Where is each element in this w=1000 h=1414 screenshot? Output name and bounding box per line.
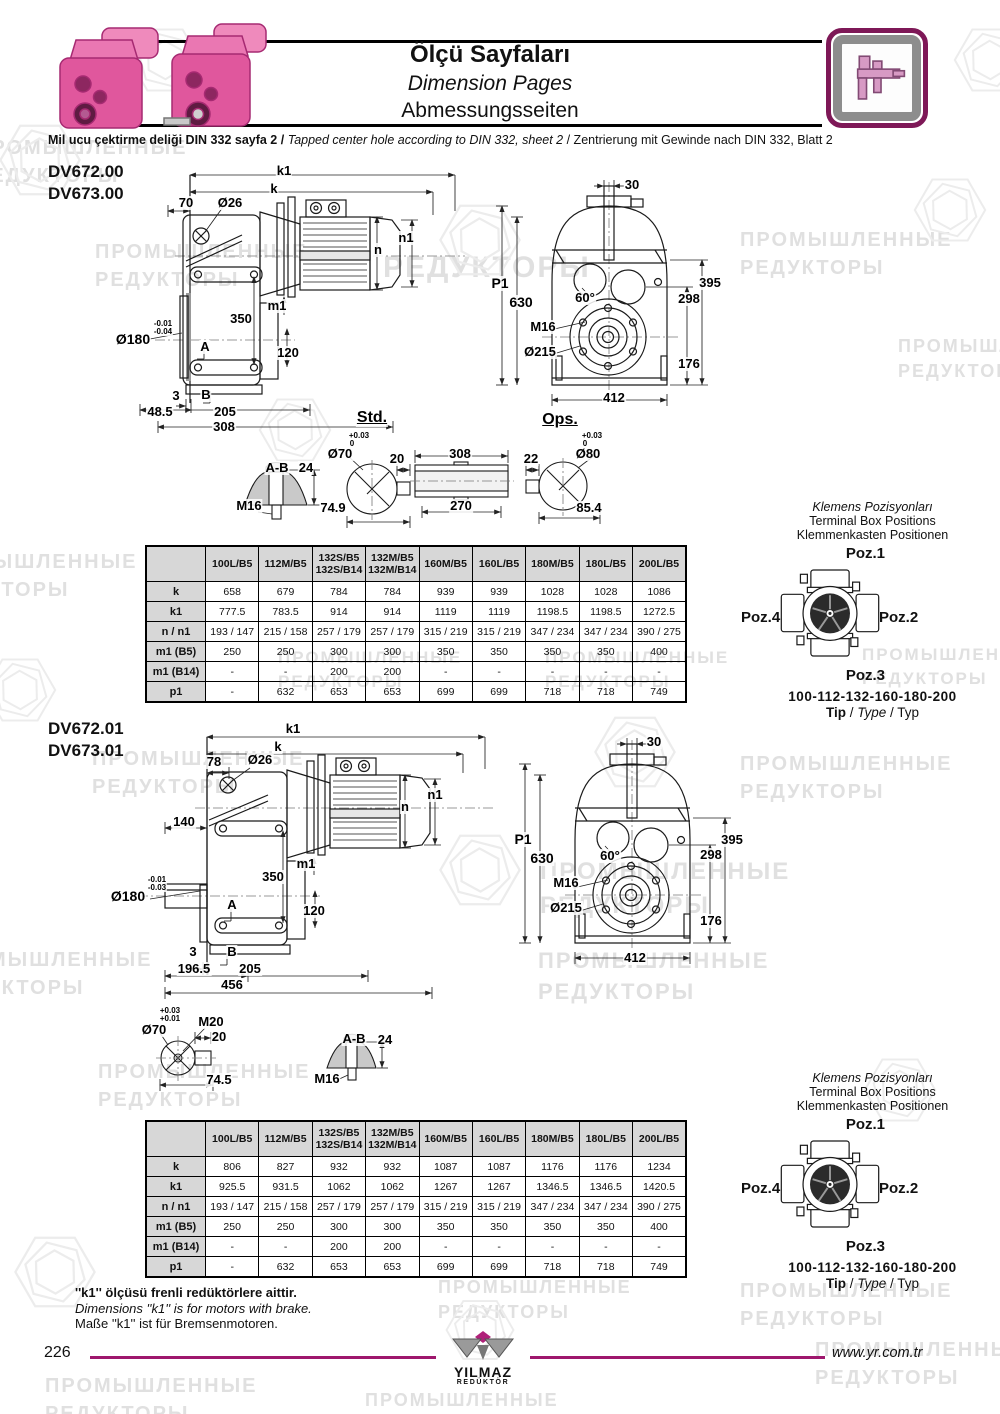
table-cell: 1119 [419, 602, 472, 622]
row-header: k [146, 582, 206, 602]
table-cell: 350 [472, 642, 525, 662]
table-cell: 350 [579, 1217, 632, 1237]
dimension-label: P1 [490, 276, 509, 291]
table-cell: 215 / 158 [259, 622, 312, 642]
dimension-label: 20 [211, 1030, 227, 1044]
table-row: k1777.5783.5914914111911191198.51198.512… [146, 602, 686, 622]
table-cell: 783.5 [259, 602, 312, 622]
column-header: 132S/B5 132S/B14 [312, 546, 365, 582]
model-code: DV673.01 [48, 740, 124, 762]
table-cell: 390 / 275 [633, 1197, 687, 1217]
table-row: n / n1193 / 147215 / 158257 / 179257 / 1… [146, 1197, 686, 1217]
poz2-label: Poz.2 [879, 1180, 918, 1197]
dimension-label: B [226, 945, 237, 959]
table-cell: 784 [312, 582, 365, 602]
din-note-en: Tapped center hole according to DIN 332,… [288, 133, 563, 147]
table-cell: - [259, 662, 312, 682]
dimension-label: 412 [623, 951, 647, 965]
column-header: 132M/B5 132M/B14 [366, 1121, 419, 1157]
dimension-label: Ø215 [549, 901, 583, 915]
dimension-label: 140 [172, 815, 196, 829]
table-cell: 315 / 219 [419, 622, 472, 642]
table-cell: - [526, 1237, 579, 1257]
table-cell: 1346.5 [526, 1177, 579, 1197]
dimension-label: -0.04 [153, 328, 173, 336]
dimension-label: Ø26 [247, 753, 274, 767]
model-codes-2: DV672.01 DV673.01 [48, 718, 124, 762]
table-cell: 1087 [419, 1157, 472, 1177]
dimension-label: M16 [313, 1072, 340, 1086]
table-row: m1 (B14)--200200----- [146, 1237, 686, 1257]
row-header: m1 (B5) [146, 642, 206, 662]
gearmotor-photo [36, 22, 294, 139]
dimension-label: 270 [449, 499, 473, 513]
table-cell: 925.5 [206, 1177, 259, 1197]
table-row: k1925.5931.510621062126712671346.51346.5… [146, 1177, 686, 1197]
yilmaz-logo: YILMAZ REDÜKTÖR [436, 1331, 530, 1386]
table-cell: 914 [366, 602, 419, 622]
page-title-block: Ölçü Sayfaları Dimension Pages Abmessung… [300, 41, 680, 123]
tip-de: Typ [897, 705, 919, 720]
table-cell: 718 [579, 1257, 632, 1278]
table-cell: 653 [366, 1257, 419, 1278]
model-code: DV673.00 [48, 183, 124, 205]
poz2-label: Poz.2 [879, 609, 918, 626]
dimension-label: 456 [220, 978, 244, 992]
table-cell: - [526, 662, 579, 682]
dimension-label: n1 [397, 231, 414, 245]
footer-rule-left [90, 1356, 436, 1359]
column-header: 160M/B5 [419, 1121, 472, 1157]
dimension-label: A [226, 898, 237, 912]
dimension-label: n [400, 800, 410, 814]
table-cell: - [259, 1237, 312, 1257]
table-cell: 679 [259, 582, 312, 602]
tip-tr: Tip [826, 1276, 846, 1291]
table-cell: 347 / 234 [579, 1197, 632, 1217]
terminal-heading-de: Klemmenkasten Positionen [745, 1099, 1000, 1113]
table-cell: 1267 [472, 1177, 525, 1197]
column-header: 180L/B5 [579, 1121, 632, 1157]
dimension-label: k [269, 182, 278, 196]
motor-fan-top-view [774, 1134, 886, 1234]
table-cell: 1420.5 [633, 1177, 687, 1197]
footnote-de: Maße ''k1'' ist für Bremsenmotoren. [75, 1316, 312, 1332]
catalog-page: ПРОМЫШЛЕННЫЕРЕДУКТОРЫПРОМЫШЛЕННЫЕРЕДУКТО… [0, 0, 1000, 1414]
table-cell: - [579, 1237, 632, 1257]
table-cell: 347 / 234 [526, 1197, 579, 1217]
table-cell: 749 [633, 1257, 687, 1278]
dimension-label: 395 [698, 276, 722, 290]
tip-de: Typ [897, 1276, 919, 1291]
page-title-de: Abmessungsseiten [300, 99, 680, 123]
table-cell: 250 [206, 642, 259, 662]
dimension-label: Ø26 [217, 196, 244, 210]
table-cell: 932 [366, 1157, 419, 1177]
dimension-label: n [373, 243, 383, 257]
table-cell: 350 [419, 642, 472, 662]
dimension-label: 298 [699, 848, 723, 862]
table-cell: 1272.5 [633, 602, 687, 622]
poz4-label: Poz.4 [741, 1180, 780, 1197]
column-header: 180L/B5 [579, 546, 632, 582]
terminal-heading-en: Terminal Box Positions [745, 1085, 1000, 1099]
tip-tr: Tip [826, 705, 846, 720]
dimension-label: P1 [513, 832, 532, 847]
table-cell: 914 [312, 602, 365, 622]
dimension-label: 120 [276, 346, 300, 360]
dimension-label: 350 [261, 870, 285, 884]
table-cell: 699 [419, 1257, 472, 1278]
table-cell: 400 [633, 1217, 687, 1237]
watermark-text: ПРОМЫШЛЕННЫЕРЕДУКТОРЫ [0, 548, 138, 604]
table-corner [146, 546, 206, 582]
dimension-label: M20 [197, 1015, 224, 1029]
table-cell: 1062 [366, 1177, 419, 1197]
table-cell: 718 [526, 1257, 579, 1278]
watermark-text: ПРОМЫШЛЕННЫЕРЕДУКТОРЫ [365, 1388, 559, 1414]
motor-fan-top-view [774, 563, 886, 663]
table-cell: 347 / 234 [526, 622, 579, 642]
dimension-label: Ø180 [115, 332, 151, 347]
column-header: 200L/B5 [633, 1121, 687, 1157]
row-header: m1 (B14) [146, 1237, 206, 1257]
column-header: 180M/B5 [526, 1121, 579, 1157]
table-cell: 939 [419, 582, 472, 602]
table-cell: 1176 [526, 1157, 579, 1177]
table-cell: - [419, 1237, 472, 1257]
model-codes-1: DV672.00 DV673.00 [48, 161, 124, 205]
table-cell: 1267 [419, 1177, 472, 1197]
column-header: 112M/B5 [259, 1121, 312, 1157]
type-label: Tip / Type / Typ [745, 705, 1000, 720]
row-header: p1 [146, 682, 206, 703]
table-cell: - [633, 662, 687, 682]
terminal-heading-tr: Klemens Pozisyonları [745, 500, 1000, 514]
dimension-label: 350 [229, 312, 253, 326]
table-cell: 653 [312, 682, 365, 703]
column-header: 100L/B5 [206, 546, 259, 582]
dimension-label: M16 [235, 499, 262, 513]
table-cell: 939 [472, 582, 525, 602]
dimension-label: M16 [552, 876, 579, 890]
poz1-label: Poz.1 [846, 1116, 885, 1133]
dimension-label: 308 [448, 447, 472, 461]
dimension-label: k1 [276, 164, 292, 178]
table-cell: 653 [366, 682, 419, 703]
table-cell: 1198.5 [579, 602, 632, 622]
type-label: Tip / Type / Typ [745, 1276, 1000, 1291]
table-cell: 350 [419, 1217, 472, 1237]
footnote-en: Dimensions ''k1'' is for motors with bra… [75, 1301, 312, 1317]
dimension-label: m1 [296, 857, 317, 871]
dimension-label: Ø70 [141, 1023, 168, 1037]
terminal-heading-en: Terminal Box Positions [745, 514, 1000, 528]
dimension-label: 205 [238, 962, 262, 976]
yilmaz-logo-icon [450, 1331, 516, 1361]
table-row: m1 (B14)--200200----- [146, 662, 686, 682]
table-cell: - [206, 1237, 259, 1257]
dimension-label: B [200, 388, 211, 402]
table-cell: 300 [312, 642, 365, 662]
watermark-hexagon-icon [950, 20, 1000, 100]
table-cell: 300 [312, 1217, 365, 1237]
poz1-label: Poz.1 [846, 545, 885, 562]
poz3-label: Poz.3 [846, 1238, 885, 1255]
table-cell: 1028 [526, 582, 579, 602]
table-cell: 749 [633, 682, 687, 703]
table-cell: 1086 [633, 582, 687, 602]
table-cell: 1062 [312, 1177, 365, 1197]
table-cell: 718 [526, 682, 579, 703]
table-cell: 300 [366, 1217, 419, 1237]
table-cell: 932 [312, 1157, 365, 1177]
table-row: p1-632653653699699718718749 [146, 682, 686, 703]
page-title-en: Dimension Pages [300, 72, 680, 96]
dimension-label: M16 [529, 320, 556, 334]
dimension-table-2: 100L/B5112M/B5132S/B5 132S/B14132M/B5 13… [145, 1120, 687, 1278]
dimension-label: 630 [529, 851, 554, 866]
model-code: DV672.00 [48, 161, 124, 183]
dimension-label: 395 [720, 833, 744, 847]
dimension-label: 3 [171, 389, 180, 403]
model-code: DV672.01 [48, 718, 124, 740]
table-cell: - [206, 662, 259, 682]
table-cell: 784 [366, 582, 419, 602]
table-cell: 350 [526, 642, 579, 662]
tip-en: Type [857, 705, 886, 720]
terminal-box-positions-1: Klemens Pozisyonları Terminal Box Positi… [745, 497, 1000, 722]
dimension-label: 30 [624, 178, 640, 192]
type-range: 100-112-132-160-180-200 [745, 1260, 1000, 1275]
dimension-label: 120 [302, 904, 326, 918]
dimension-label: 60° [599, 849, 621, 863]
table-row: k658679784784939939102810281086 [146, 582, 686, 602]
dimension-label: 24 [377, 1033, 393, 1047]
table-cell: 653 [312, 1257, 365, 1278]
dimension-label: A [199, 340, 210, 354]
dimension-label: -0.03 [147, 884, 167, 892]
page-title: Ölçü Sayfaları [300, 41, 680, 69]
watermark-text: ПРОМЫШЛЕННЫЕРЕДУКТОРЫ [898, 334, 1000, 384]
dimension-label: Ø80 [575, 447, 602, 461]
dimension-label: Std. [356, 410, 388, 427]
brand-name: YILMAZ [436, 1366, 530, 1379]
table-cell: 250 [206, 1217, 259, 1237]
dimension-label: A-B [341, 1032, 366, 1046]
dimension-label: 196.5 [177, 962, 212, 976]
table-cell: 777.5 [206, 602, 259, 622]
dimension-label: 630 [508, 295, 533, 310]
footer-rule-right [530, 1356, 825, 1359]
table-cell: 718 [579, 682, 632, 703]
tip-en: Type [857, 1276, 886, 1291]
table-cell: - [419, 662, 472, 682]
table-cell: 347 / 234 [579, 622, 632, 642]
table-cell: 257 / 179 [366, 1197, 419, 1217]
dimension-label: 48.5 [146, 405, 173, 419]
dimension-label: A-B [264, 461, 289, 475]
front-view-drawing-2 [513, 728, 793, 973]
row-header: k [146, 1157, 206, 1177]
din-note-de: / Zentrierung mit Gewinde nach DIN 332, … [567, 133, 833, 147]
column-header: 160M/B5 [419, 546, 472, 582]
table-cell: 699 [472, 1257, 525, 1278]
table-row: p1-632653653699699718718749 [146, 1257, 686, 1278]
row-header: m1 (B5) [146, 1217, 206, 1237]
footnote: ''k1'' ölçüsü frenli redüktörlere aittir… [75, 1285, 312, 1332]
row-header: k1 [146, 602, 206, 622]
table-cell: 1346.5 [579, 1177, 632, 1197]
table-row: m1 (B5)250250300300350350350350400 [146, 642, 686, 662]
terminal-box-positions-2: Klemens Pozisyonları Terminal Box Positi… [745, 1068, 1000, 1293]
dimension-label: k [273, 740, 282, 754]
page-number: 226 [44, 1344, 71, 1362]
table-cell: 400 [633, 642, 687, 662]
poz4-label: Poz.4 [741, 609, 780, 626]
front-view-drawing-1 [490, 170, 770, 415]
dimension-label: 308 [212, 420, 236, 434]
table-cell: 257 / 179 [366, 622, 419, 642]
dimension-label: 412 [602, 391, 626, 405]
table-cell: 699 [472, 682, 525, 703]
table-cell: 632 [259, 1257, 312, 1278]
table-cell: 350 [526, 1217, 579, 1237]
brand-subtitle: REDÜKTÖR [436, 1379, 530, 1386]
table-cell: 1198.5 [526, 602, 579, 622]
dimension-label: 176 [677, 357, 701, 371]
table-cell: 315 / 219 [472, 622, 525, 642]
table-cell: 300 [366, 642, 419, 662]
table-cell: 390 / 275 [633, 622, 687, 642]
table-cell: - [472, 662, 525, 682]
dimension-label: 298 [677, 292, 701, 306]
terminal-heading-tr: Klemens Pozisyonları [745, 1071, 1000, 1085]
table-corner [146, 1121, 206, 1157]
row-header: p1 [146, 1257, 206, 1278]
table-cell: 1176 [579, 1157, 632, 1177]
table-cell: 350 [579, 642, 632, 662]
table-cell: 215 / 158 [259, 1197, 312, 1217]
table-cell: 931.5 [259, 1177, 312, 1197]
dimension-label: 78 [206, 755, 222, 769]
website-url: www.yr.com.tr [832, 1345, 923, 1361]
table-cell: 699 [419, 682, 472, 703]
table-cell: 193 / 147 [206, 622, 259, 642]
dimension-label: 85.4 [575, 501, 602, 515]
dimension-label: n1 [426, 788, 443, 802]
dimension-label: m1 [267, 299, 288, 313]
table-cell: - [472, 1237, 525, 1257]
column-header: 100L/B5 [206, 1121, 259, 1157]
table-cell: 200 [312, 1237, 365, 1257]
column-header: 160L/B5 [472, 546, 525, 582]
table-cell: 193 / 147 [206, 1197, 259, 1217]
dimension-label: 3 [188, 945, 197, 959]
column-header: 112M/B5 [259, 546, 312, 582]
table-cell: 315 / 219 [472, 1197, 525, 1217]
dimension-label: Ø180 [110, 889, 146, 904]
row-header: n / n1 [146, 1197, 206, 1217]
table-cell: 257 / 179 [312, 622, 365, 642]
row-header: k1 [146, 1177, 206, 1197]
dimension-label: 22 [523, 452, 539, 466]
table-row: m1 (B5)250250300300350350350350400 [146, 1217, 686, 1237]
table-cell: 315 / 219 [419, 1197, 472, 1217]
table-cell: 658 [206, 582, 259, 602]
dimension-table-1: 100L/B5112M/B5132S/B5 132S/B14132M/B5 13… [145, 545, 687, 703]
caliper-icon [833, 35, 921, 121]
table-cell: 1087 [472, 1157, 525, 1177]
dimension-label: 74.5 [205, 1073, 232, 1087]
table-cell: 827 [259, 1157, 312, 1177]
table-row: k80682793293210871087117611761234 [146, 1157, 686, 1177]
dimension-label: Ø215 [523, 345, 557, 359]
column-header: 200L/B5 [633, 546, 687, 582]
table-cell: 200 [366, 662, 419, 682]
caliper-icon-frame [826, 28, 928, 128]
table-cell: 1234 [633, 1157, 687, 1177]
table-cell: - [579, 662, 632, 682]
column-header: 132S/B5 132S/B14 [312, 1121, 365, 1157]
terminal-heading-de: Klemmenkasten Positionen [745, 528, 1000, 542]
type-range: 100-112-132-160-180-200 [745, 689, 1000, 704]
table-cell: 806 [206, 1157, 259, 1177]
dimension-label: 74.9 [319, 501, 346, 515]
dimension-label: Ops. [541, 412, 579, 429]
dimension-label: 60° [574, 291, 596, 305]
dimension-label: k1 [285, 722, 301, 736]
watermark-text: ПРОМЫШЛЕННЫЕРЕДУКТОРЫ [45, 1372, 258, 1414]
table-cell: 250 [259, 1217, 312, 1237]
row-header: m1 (B14) [146, 662, 206, 682]
table-cell: 632 [259, 682, 312, 703]
footnote-tr: ''k1'' ölçüsü frenli redüktörlere aittir… [75, 1285, 312, 1301]
table-cell: 257 / 179 [312, 1197, 365, 1217]
table-cell: 350 [472, 1217, 525, 1237]
table-cell: - [206, 682, 259, 703]
dimension-label: 176 [699, 914, 723, 928]
dimension-label: 205 [213, 405, 237, 419]
dimension-label: Ø70 [327, 447, 354, 461]
table-row: n / n1193 / 147215 / 158257 / 179257 / 1… [146, 622, 686, 642]
poz3-label: Poz.3 [846, 667, 885, 684]
watermark-hexagon-icon [910, 170, 990, 250]
table-cell: - [633, 1237, 687, 1257]
table-cell: 250 [259, 642, 312, 662]
dimension-label: 70 [178, 196, 194, 210]
table-cell: 200 [312, 662, 365, 682]
table-cell: - [206, 1257, 259, 1278]
dimension-label: 30 [646, 735, 662, 749]
dimension-label: 24 [298, 461, 314, 475]
table-cell: 1028 [579, 582, 632, 602]
column-header: 160L/B5 [472, 1121, 525, 1157]
dimension-label: 20 [389, 452, 405, 466]
row-header: n / n1 [146, 622, 206, 642]
shaft-detail-drawing-2 [110, 1003, 410, 1098]
column-header: 132M/B5 132M/B14 [366, 546, 419, 582]
table-cell: 1119 [472, 602, 525, 622]
column-header: 180M/B5 [526, 546, 579, 582]
table-cell: 200 [366, 1237, 419, 1257]
